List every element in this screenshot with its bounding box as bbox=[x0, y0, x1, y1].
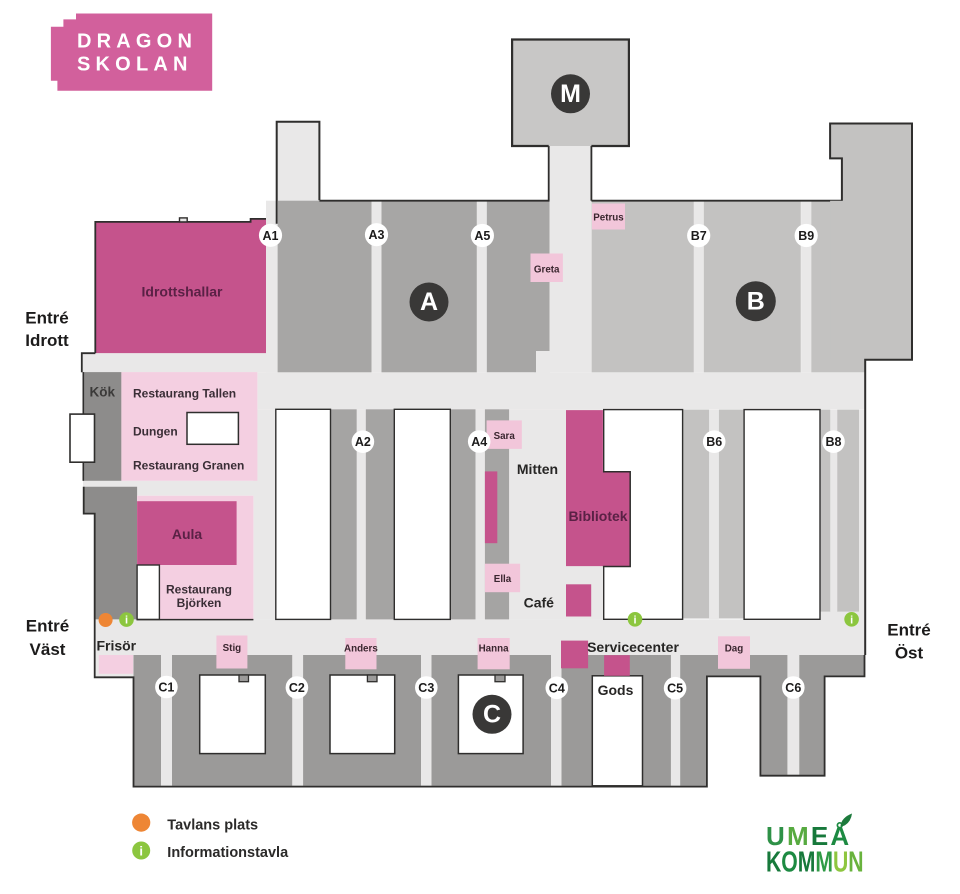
svg-text:Sara: Sara bbox=[494, 431, 516, 442]
svg-text:C1: C1 bbox=[158, 681, 174, 695]
svg-text:Frisör: Frisör bbox=[96, 638, 136, 654]
svg-text:Restaurang Granen: Restaurang Granen bbox=[133, 459, 244, 473]
svg-text:B9: B9 bbox=[798, 229, 814, 243]
svg-text:B7: B7 bbox=[691, 229, 707, 243]
svg-text:Bibliotek: Bibliotek bbox=[568, 508, 627, 524]
svg-text:Entré: Entré bbox=[26, 617, 69, 636]
svg-text:B: B bbox=[747, 287, 765, 315]
svg-text:Stig: Stig bbox=[223, 643, 242, 654]
svg-text:Entré: Entré bbox=[887, 621, 930, 640]
svg-text:Öst: Öst bbox=[895, 644, 924, 663]
svg-text:A5: A5 bbox=[474, 229, 490, 243]
svg-text:Café: Café bbox=[524, 595, 555, 611]
svg-text:B8: B8 bbox=[826, 435, 842, 449]
svg-text:Servicecenter: Servicecenter bbox=[587, 639, 679, 655]
svg-text:C5: C5 bbox=[667, 682, 683, 696]
svg-text:Dag: Dag bbox=[725, 644, 744, 655]
svg-text:Gods: Gods bbox=[598, 682, 634, 698]
svg-text:Björken: Björken bbox=[177, 596, 222, 610]
svg-text:Idrott: Idrott bbox=[25, 331, 69, 350]
svg-text:Entré: Entré bbox=[25, 308, 68, 327]
svg-text:Restaurang: Restaurang bbox=[166, 583, 232, 597]
svg-text:KOMMUN: KOMMUN bbox=[766, 846, 864, 878]
svg-text:C3: C3 bbox=[418, 681, 434, 695]
svg-text:i: i bbox=[125, 615, 128, 627]
svg-text:A1: A1 bbox=[263, 229, 279, 243]
svg-text:Restaurang Tallen: Restaurang Tallen bbox=[133, 387, 236, 401]
svg-text:B6: B6 bbox=[706, 435, 722, 449]
svg-text:Aula: Aula bbox=[172, 526, 203, 542]
svg-text:SKOLAN: SKOLAN bbox=[77, 53, 193, 75]
svg-text:i: i bbox=[850, 614, 853, 626]
svg-text:C: C bbox=[483, 701, 501, 729]
svg-text:A4: A4 bbox=[471, 435, 487, 449]
svg-text:Idrottshallar: Idrottshallar bbox=[142, 284, 223, 300]
svg-text:i: i bbox=[139, 843, 143, 858]
svg-text:Informationstavla: Informationstavla bbox=[167, 845, 289, 861]
svg-text:Ella: Ella bbox=[494, 574, 512, 585]
svg-text:M: M bbox=[560, 80, 581, 108]
svg-text:C6: C6 bbox=[785, 681, 801, 695]
svg-text:A2: A2 bbox=[355, 435, 371, 449]
svg-text:Tavlans plats: Tavlans plats bbox=[167, 818, 258, 834]
svg-text:Väst: Väst bbox=[30, 640, 66, 659]
svg-text:Petrus: Petrus bbox=[593, 213, 624, 224]
svg-text:C4: C4 bbox=[549, 681, 565, 695]
svg-text:Greta: Greta bbox=[534, 265, 560, 276]
svg-text:i: i bbox=[633, 614, 636, 626]
svg-text:A: A bbox=[420, 288, 438, 316]
svg-text:Mitten: Mitten bbox=[517, 461, 558, 477]
svg-text:Anders: Anders bbox=[344, 644, 378, 655]
svg-text:DRAGON: DRAGON bbox=[77, 31, 197, 53]
svg-text:Dungen: Dungen bbox=[133, 425, 178, 439]
svg-text:A3: A3 bbox=[369, 228, 385, 242]
svg-text:Hanna: Hanna bbox=[479, 644, 509, 655]
svg-text:Kök: Kök bbox=[90, 385, 116, 400]
svg-text:C2: C2 bbox=[289, 681, 305, 695]
